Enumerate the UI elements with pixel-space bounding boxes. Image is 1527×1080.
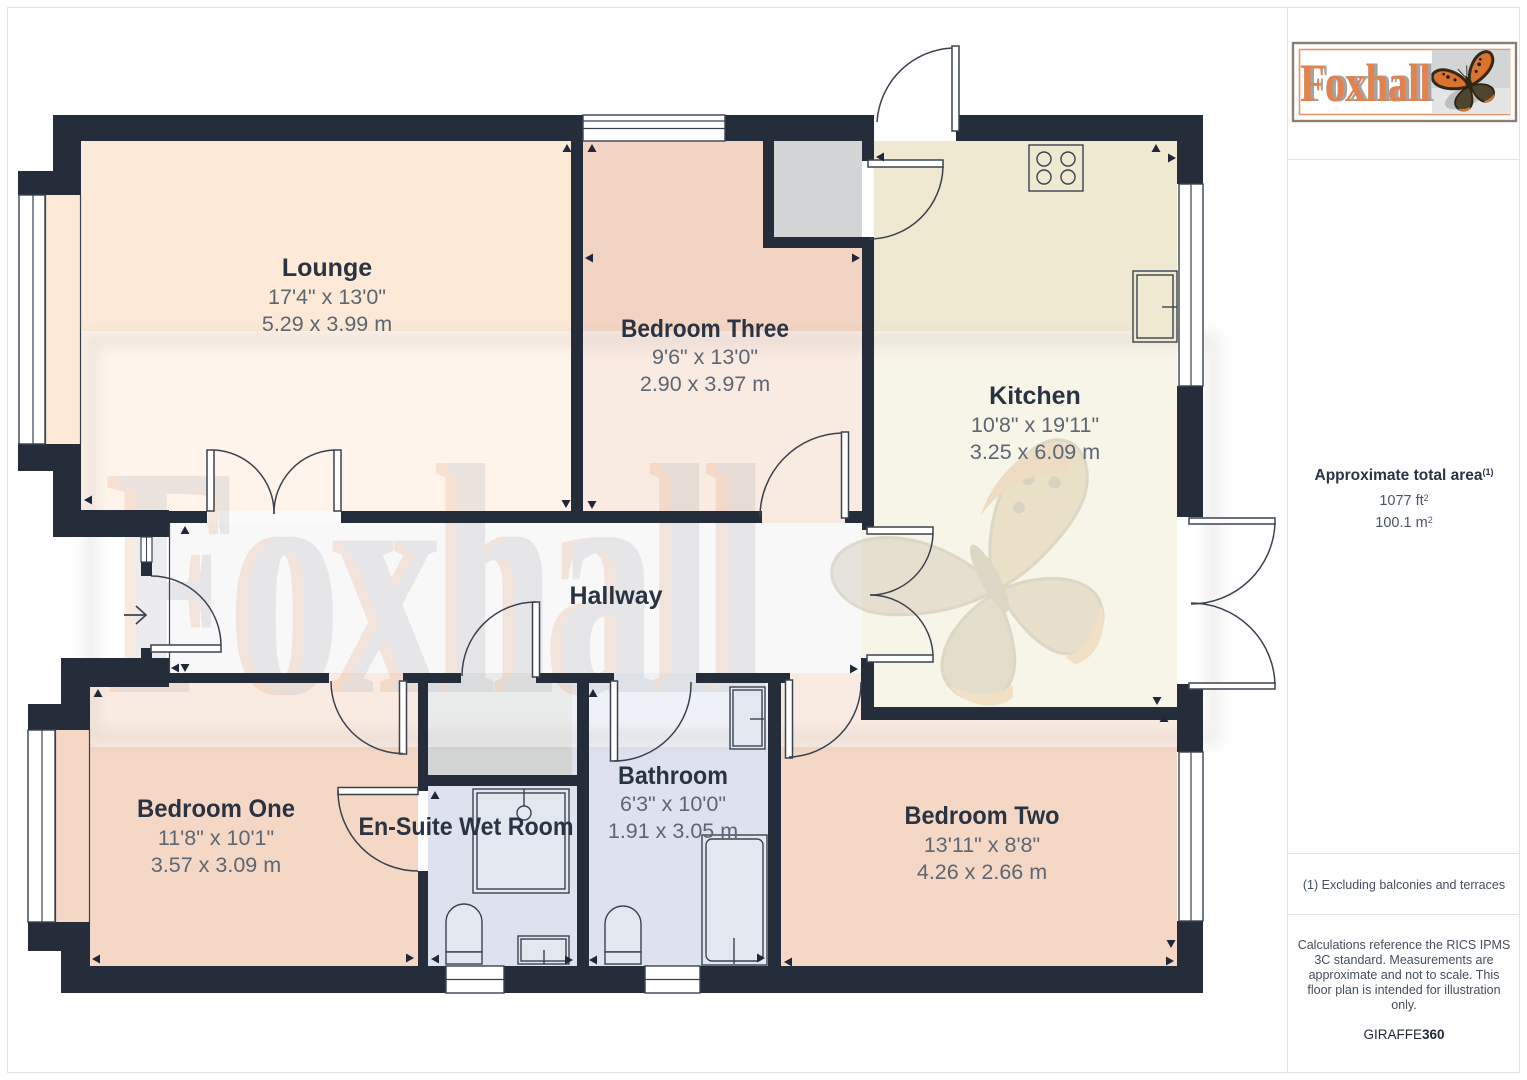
svg-text:Foxhall: Foxhall [1300, 53, 1430, 113]
svg-text:Kitchen: Kitchen [989, 382, 1081, 410]
svg-text:Bedroom One: Bedroom One [137, 795, 295, 823]
svg-text:En-Suite Wet Room: En-Suite Wet Room [359, 813, 574, 841]
svg-text:6'3" x 10'0": 6'3" x 10'0" [620, 792, 726, 816]
svg-text:GIRAFFE360: GIRAFFE360 [1363, 1027, 1444, 1042]
svg-text:11'8" x 10'1": 11'8" x 10'1" [158, 826, 274, 850]
svg-text:Calculations reference the RIC: Calculations reference the RICS IPMS [1298, 938, 1511, 952]
svg-text:1077 ft2: 1077 ft2 [1379, 493, 1428, 509]
svg-text:100.1 m2: 100.1 m2 [1375, 515, 1432, 531]
svg-text:3.57 x 3.09 m: 3.57 x 3.09 m [151, 853, 281, 877]
svg-text:9'6" x 13'0": 9'6" x 13'0" [652, 345, 758, 369]
svg-text:Hallway: Hallway [569, 582, 662, 610]
svg-text:(1) Excluding balconies and te: (1) Excluding balconies and terraces [1303, 878, 1505, 892]
svg-text:17'4" x 13'0": 17'4" x 13'0" [268, 285, 386, 309]
svg-text:approximate and not to scale.: approximate and not to scale. This [1309, 968, 1500, 982]
svg-text:13'11" x 8'8": 13'11" x 8'8" [924, 833, 1040, 857]
svg-text:Bedroom Three: Bedroom Three [621, 315, 789, 343]
svg-text:10'8" x 19'11": 10'8" x 19'11" [971, 413, 1099, 437]
svg-text:Approximate total area(1): Approximate total area(1) [1315, 467, 1494, 484]
svg-text:Bathroom: Bathroom [618, 762, 728, 790]
svg-text:only.: only. [1391, 998, 1416, 1012]
svg-text:3.25 x 6.09 m: 3.25 x 6.09 m [970, 440, 1100, 464]
svg-text:2.90 x 3.97 m: 2.90 x 3.97 m [640, 372, 770, 396]
svg-text:3C standard. Measurements are: 3C standard. Measurements are [1314, 953, 1493, 967]
svg-text:5.29 x 3.99 m: 5.29 x 3.99 m [262, 312, 392, 336]
svg-text:Bedroom Two: Bedroom Two [905, 802, 1060, 830]
svg-text:1.91 x 3.05 m: 1.91 x 3.05 m [608, 819, 738, 843]
svg-text:4.26 x 2.66 m: 4.26 x 2.66 m [917, 860, 1047, 884]
svg-text:floor plan is intended for ill: floor plan is intended for illustration [1307, 983, 1500, 997]
svg-text:Lounge: Lounge [282, 254, 372, 282]
